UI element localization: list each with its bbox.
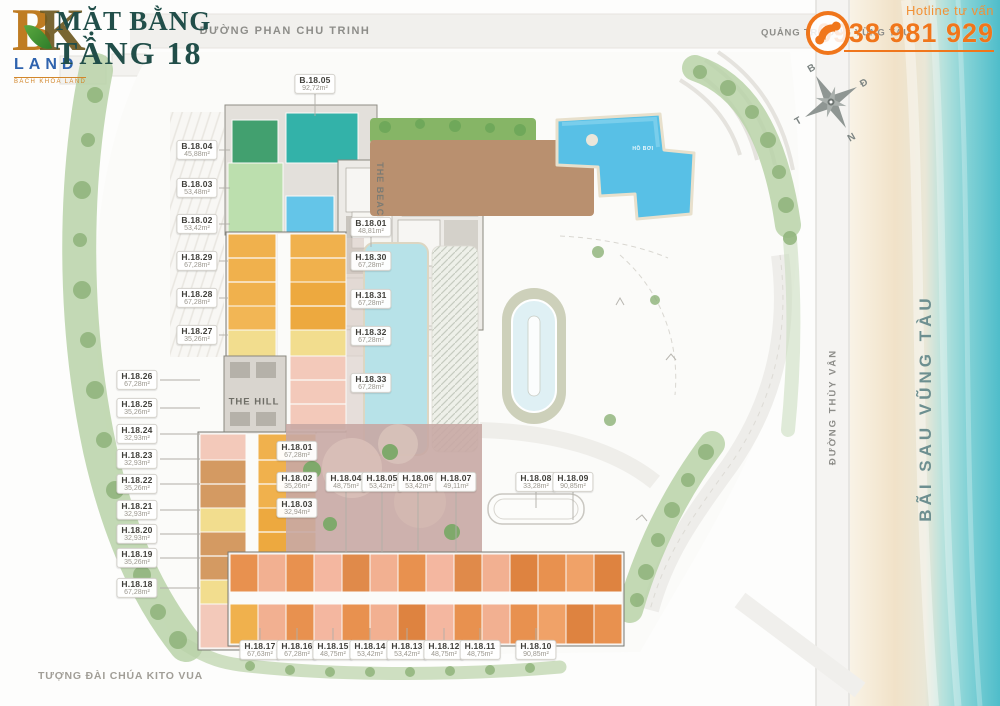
unit-label: H.18.2535,26m² [116, 398, 157, 418]
hotline-underline [844, 50, 994, 52]
unit-label: H.18.3367,28m² [350, 373, 391, 393]
unit-label: H.18.0448,75m² [325, 472, 366, 492]
unit-label: H.18.2132,93m² [116, 500, 157, 520]
unit-label: H.18.1767,63m² [239, 640, 280, 660]
floorplan-page: B Đ N T B K LAND BÁCH KHOA LAND MẶT BẰNG… [0, 0, 1000, 706]
title-line2: TẦNG 18 [56, 37, 211, 69]
oval-water-feature [502, 288, 566, 424]
unit-label: H.18.0235,26m² [276, 472, 317, 492]
unit-label: H.18.1667,28m² [276, 640, 317, 660]
unit-label: H.18.2867,28m² [176, 288, 217, 308]
zone-the-beach: THE BEACH [375, 162, 385, 224]
title-line1: MẶT BẰNG [56, 8, 211, 35]
unit-label: H.18.0653,42m² [397, 472, 438, 492]
unit-label: H.18.1935,26m² [116, 548, 157, 568]
unit-label: H.18.2432,93m² [116, 424, 157, 444]
unit-label: H.18.2735,26m² [176, 325, 217, 345]
unit-label: H.18.2667,28m² [116, 370, 157, 390]
zone-pool: HỒ BƠI [632, 146, 653, 152]
unit-label: H.18.2235,26m² [116, 474, 157, 494]
zone-the-hill: THE HILL [229, 397, 280, 408]
unit-label: B.18.0445,88m² [176, 140, 217, 160]
unit-id: B.18.01 [355, 219, 386, 228]
unit-label: H.18.1548,75m² [312, 640, 353, 660]
unit-label: H.18.0332,94m² [276, 498, 317, 518]
beach-name: BÃI SAU VŨNG TÀU [916, 294, 936, 521]
unit-label: H.18.0167,28m² [276, 441, 317, 461]
unit-label: B.18.0353,48m² [176, 178, 217, 198]
unit-label: H.18.2332,93m² [116, 449, 157, 469]
unit-label: H.18.3167,28m² [350, 289, 391, 309]
logo-subtitle: BÁCH KHOA LAND [14, 77, 86, 85]
street-thuy-van: ĐƯỜNG THÙY VÂN [828, 349, 839, 465]
unit-label: H.18.0990,85m² [552, 472, 593, 492]
unit-label: H.18.0749,11m² [435, 472, 476, 492]
unit-label: H.18.1148,75m² [460, 640, 501, 660]
phone-icon [806, 11, 850, 55]
unit-label: H.18.2032,93m² [116, 524, 157, 544]
unit-label: H.18.1867,28m² [116, 578, 157, 598]
unit-label-b1801: B.18.01 48,81m² [350, 217, 391, 237]
unit-label: H.18.2967,28m² [176, 251, 217, 271]
unit-label: H.18.1248,75m² [423, 640, 464, 660]
site-plan-svg: B Đ N T [0, 0, 1000, 706]
unit-label: B.18.0253,42m² [176, 214, 217, 234]
unit-area: 48,81m² [355, 228, 386, 235]
south-bar [228, 552, 624, 646]
hill-core [224, 356, 286, 432]
unit-label: H.18.0553,42m² [361, 472, 402, 492]
unit-id: B.18.05 [299, 76, 330, 85]
unit-label-b1805: B.18.05 92,72m² [294, 74, 335, 94]
unit-label: H.18.0833,28m² [515, 472, 556, 492]
unit-label: H.18.3067,28m² [350, 251, 391, 271]
street-phan-chu-trinh: ĐƯỜNG PHAN CHU TRINH [200, 25, 371, 37]
unit-area: 92,72m² [299, 85, 330, 92]
landmark-label: TƯỢNG ĐÀI CHÚA KITO VUA [38, 670, 203, 682]
unit-label: H.18.1453,42m² [349, 640, 390, 660]
page-title: MẶT BẰNG TẦNG 18 [56, 8, 211, 69]
unit-label: H.18.3267,28m² [350, 326, 391, 346]
unit-label: H.18.1353,42m² [386, 640, 427, 660]
unit-label: H.18.1090,85m² [515, 640, 556, 660]
